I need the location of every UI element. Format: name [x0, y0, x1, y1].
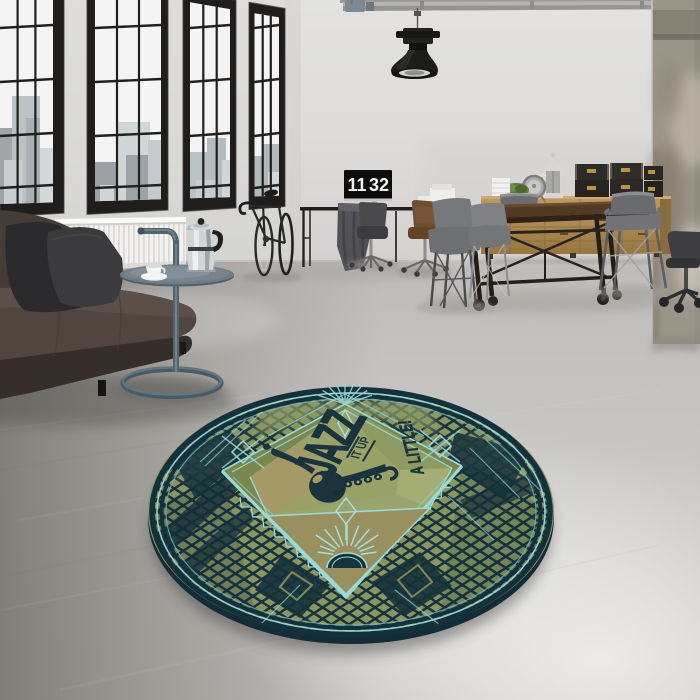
- svg-text:11: 11: [347, 175, 366, 195]
- svg-text:32: 32: [369, 175, 389, 195]
